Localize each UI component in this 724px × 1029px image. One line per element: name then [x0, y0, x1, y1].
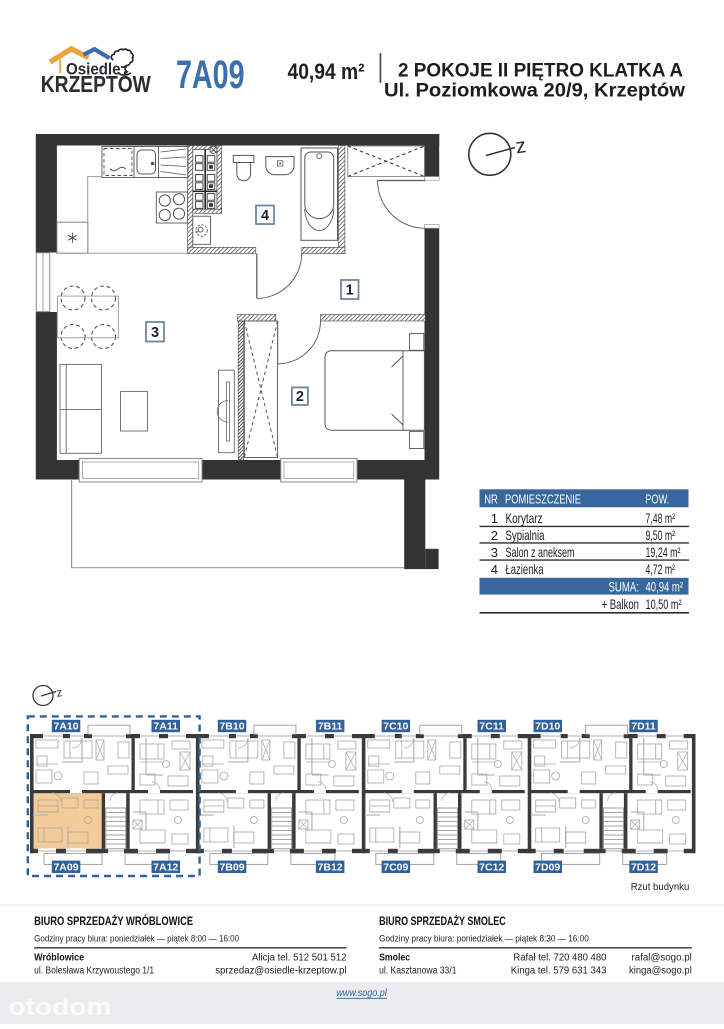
svg-text:7D09: 7D09	[535, 861, 560, 873]
svg-text:ul. Kasztanowa 33/1: ul. Kasztanowa 33/1	[379, 966, 457, 977]
svg-text:7A10: 7A10	[53, 721, 78, 733]
svg-text:7D11: 7D11	[631, 721, 656, 733]
svg-text:7D10: 7D10	[535, 721, 560, 733]
svg-text:Sypialnia: Sypialnia	[506, 527, 545, 543]
svg-text:Rafał tel. 720 480 480: Rafał tel. 720 480 480	[513, 953, 606, 964]
svg-text:10,50 m²: 10,50 m²	[646, 596, 682, 612]
svg-text:Rzut budynku: Rzut budynku	[631, 881, 690, 893]
svg-text:BIURO SPRZEDAŻY WRÓBLOWICE: BIURO SPRZEDAŻY WRÓBLOWICE	[34, 915, 193, 928]
svg-text:Łazienka: Łazienka	[506, 561, 544, 577]
svg-text:POMIESZCZENIE: POMIESZCZENIE	[505, 493, 581, 507]
svg-text:KRZEPTÓW: KRZEPTÓW	[41, 70, 151, 97]
svg-text:7B12: 7B12	[318, 861, 343, 873]
svg-text:7C09: 7C09	[383, 861, 408, 873]
svg-text:BIURO SPRZEDAŻY SMOLEC: BIURO SPRZEDAŻY SMOLEC	[379, 915, 506, 928]
svg-text:7B10: 7B10	[219, 721, 244, 733]
svg-text:kinga@sogo.pl: kinga@sogo.pl	[629, 966, 692, 977]
svg-text:+ Balkon: + Balkon	[602, 596, 640, 612]
svg-text:19,24 m²: 19,24 m²	[646, 544, 681, 560]
svg-text:1: 1	[491, 511, 498, 526]
svg-text:7C12: 7C12	[479, 861, 504, 873]
svg-text:7,48 m²: 7,48 m²	[646, 510, 676, 526]
svg-text:SUMA:: SUMA:	[609, 578, 640, 594]
svg-text:Alicja tel. 512 501 512: Alicja tel. 512 501 512	[252, 953, 347, 964]
svg-text:7C11: 7C11	[479, 721, 504, 733]
svg-text:Kinga tel. 579 631 343: Kinga tel. 579 631 343	[511, 966, 607, 977]
svg-text:Ul. Poziomkowa 20/9, Krzeptów: Ul. Poziomkowa 20/9, Krzeptów	[384, 81, 685, 102]
svg-text:Godziny pracy biura: poniedzia: Godziny pracy biura: poniedziałek — piąt…	[379, 934, 589, 945]
svg-text:sprzedaz@osiedle-krzeptow.pl: sprzedaz@osiedle-krzeptow.pl	[215, 966, 346, 977]
svg-text:9,50 m²: 9,50 m²	[646, 527, 676, 543]
svg-text:7A09: 7A09	[53, 861, 78, 873]
svg-text:2: 2	[491, 528, 498, 543]
svg-text:40,94 m²: 40,94 m²	[646, 578, 684, 594]
svg-text:Smolec: Smolec	[379, 953, 410, 964]
svg-text:2 POKOJE II PIĘTRO KLATKA A: 2 POKOJE II PIĘTRO KLATKA A	[398, 61, 683, 82]
svg-text:www.sogo.pl: www.sogo.pl	[336, 988, 387, 999]
svg-text:otodom: otodom	[9, 994, 112, 1021]
svg-text:POW.: POW.	[645, 493, 669, 507]
svg-text:Salon z aneksem: Salon z aneksem	[506, 544, 575, 560]
svg-text:2: 2	[296, 389, 304, 405]
svg-text:7A12: 7A12	[153, 861, 178, 873]
svg-text:7A11: 7A11	[153, 721, 178, 733]
svg-text:Godziny pracy biura: poniedzia: Godziny pracy biura: poniedziałek — piąt…	[34, 934, 239, 945]
svg-text:rafal@sogo.pl: rafal@sogo.pl	[632, 953, 692, 964]
svg-text:7B09: 7B09	[219, 861, 244, 873]
svg-text:3: 3	[151, 325, 159, 341]
svg-text:7C10: 7C10	[383, 721, 408, 733]
svg-text:Wróblowice: Wróblowice	[34, 953, 84, 964]
svg-text:4: 4	[491, 562, 498, 577]
svg-text:7D12: 7D12	[631, 861, 656, 873]
svg-text:40,94 m²: 40,94 m²	[288, 59, 365, 84]
svg-text:NR: NR	[484, 493, 498, 507]
svg-text:4,72 m²: 4,72 m²	[646, 561, 676, 577]
svg-text:7B11: 7B11	[318, 721, 343, 733]
svg-text:ul. Bolesława Krzywoustego 1/1: ul. Bolesława Krzywoustego 1/1	[34, 966, 154, 977]
svg-text:7A09: 7A09	[176, 53, 245, 97]
svg-text:1: 1	[346, 283, 354, 299]
svg-text:4: 4	[261, 208, 269, 224]
svg-text:Korytarz: Korytarz	[506, 510, 543, 526]
svg-text:3: 3	[491, 545, 498, 560]
